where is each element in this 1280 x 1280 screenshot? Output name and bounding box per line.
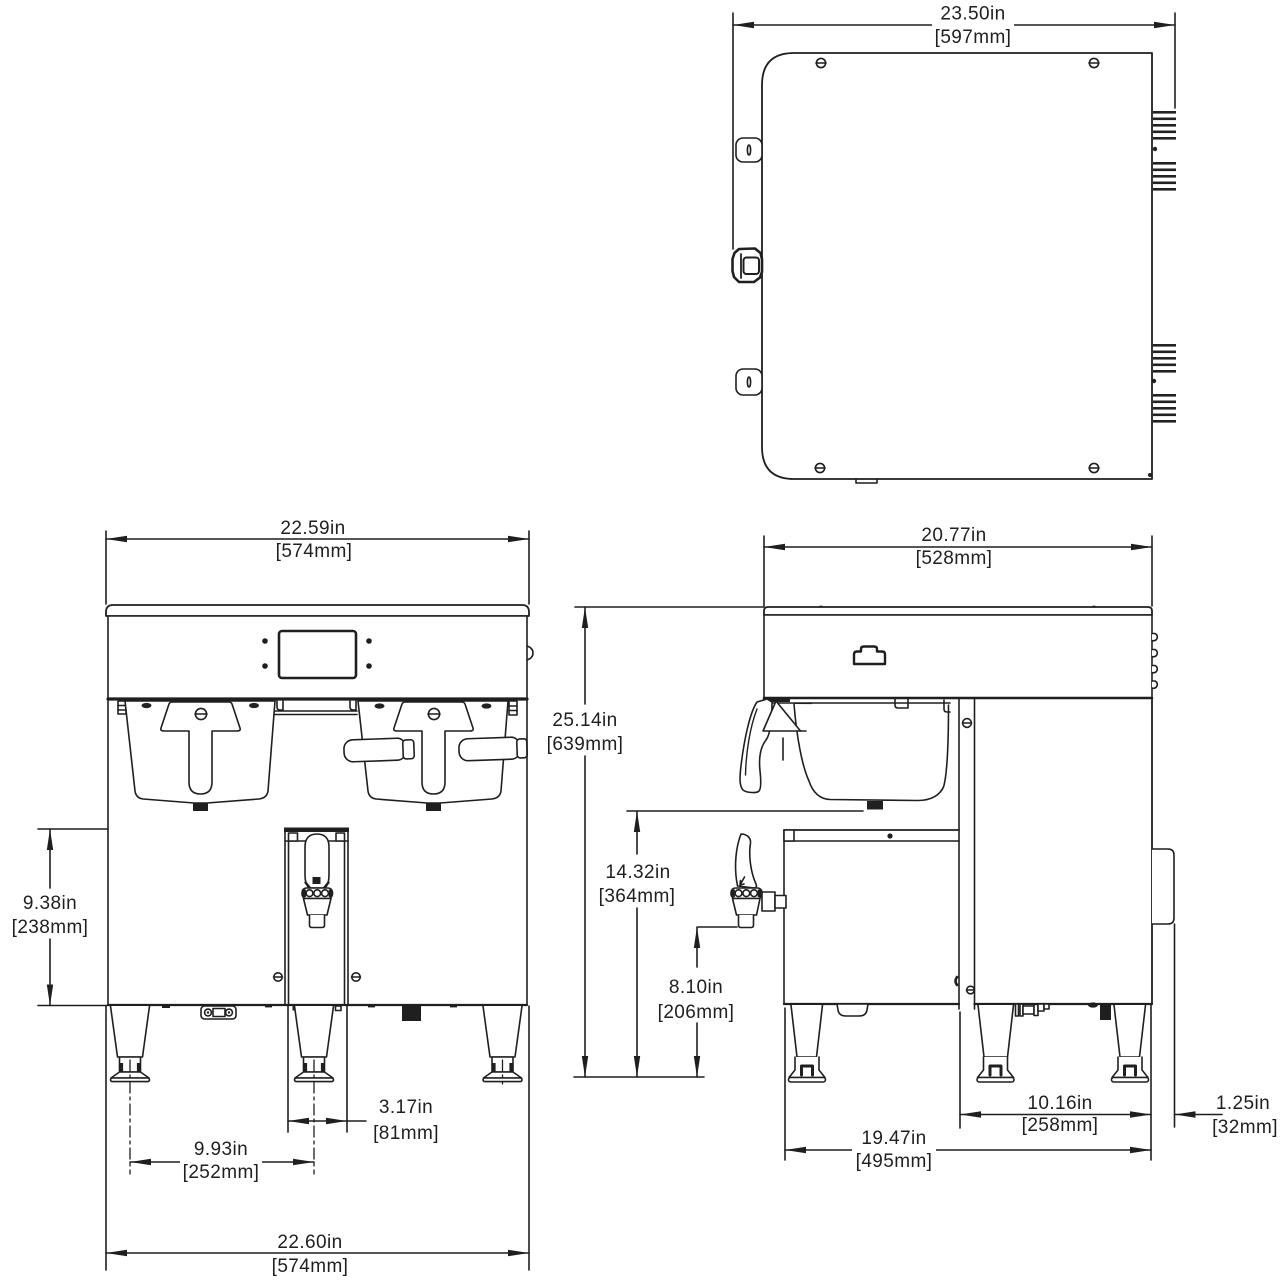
- svg-text:[364mm]: [364mm]: [599, 886, 676, 907]
- svg-text:1.25in: 1.25in: [1216, 1093, 1270, 1114]
- svg-text:[574mm]: [574mm]: [276, 541, 353, 562]
- svg-text:20.77in: 20.77in: [921, 525, 986, 546]
- svg-text:[528mm]: [528mm]: [916, 548, 993, 569]
- svg-text:8.10in: 8.10in: [669, 977, 723, 998]
- svg-text:[258mm]: [258mm]: [1022, 1115, 1099, 1136]
- svg-text:10.16in: 10.16in: [1027, 1093, 1092, 1114]
- svg-text:[252mm]: [252mm]: [183, 1162, 260, 1183]
- svg-text:[81mm]: [81mm]: [373, 1123, 439, 1144]
- svg-text:[597mm]: [597mm]: [935, 27, 1012, 48]
- svg-text:23.50in: 23.50in: [940, 4, 1005, 25]
- svg-text:9.38in: 9.38in: [23, 893, 77, 914]
- svg-text:3.17in: 3.17in: [379, 1097, 433, 1118]
- svg-text:19.47in: 19.47in: [861, 1128, 926, 1149]
- svg-text:9.93in: 9.93in: [194, 1139, 248, 1160]
- svg-text:[238mm]: [238mm]: [12, 917, 89, 938]
- svg-text:[574mm]: [574mm]: [272, 1256, 349, 1277]
- svg-text:[32mm]: [32mm]: [1212, 1117, 1278, 1138]
- svg-text:22.59in: 22.59in: [280, 518, 345, 539]
- svg-text:14.32in: 14.32in: [605, 862, 670, 883]
- svg-text:[639mm]: [639mm]: [547, 734, 624, 755]
- svg-text:[206mm]: [206mm]: [658, 1002, 735, 1023]
- svg-text:25.14in: 25.14in: [552, 710, 617, 731]
- svg-text:22.60in: 22.60in: [277, 1232, 342, 1253]
- svg-text:[495mm]: [495mm]: [856, 1151, 933, 1172]
